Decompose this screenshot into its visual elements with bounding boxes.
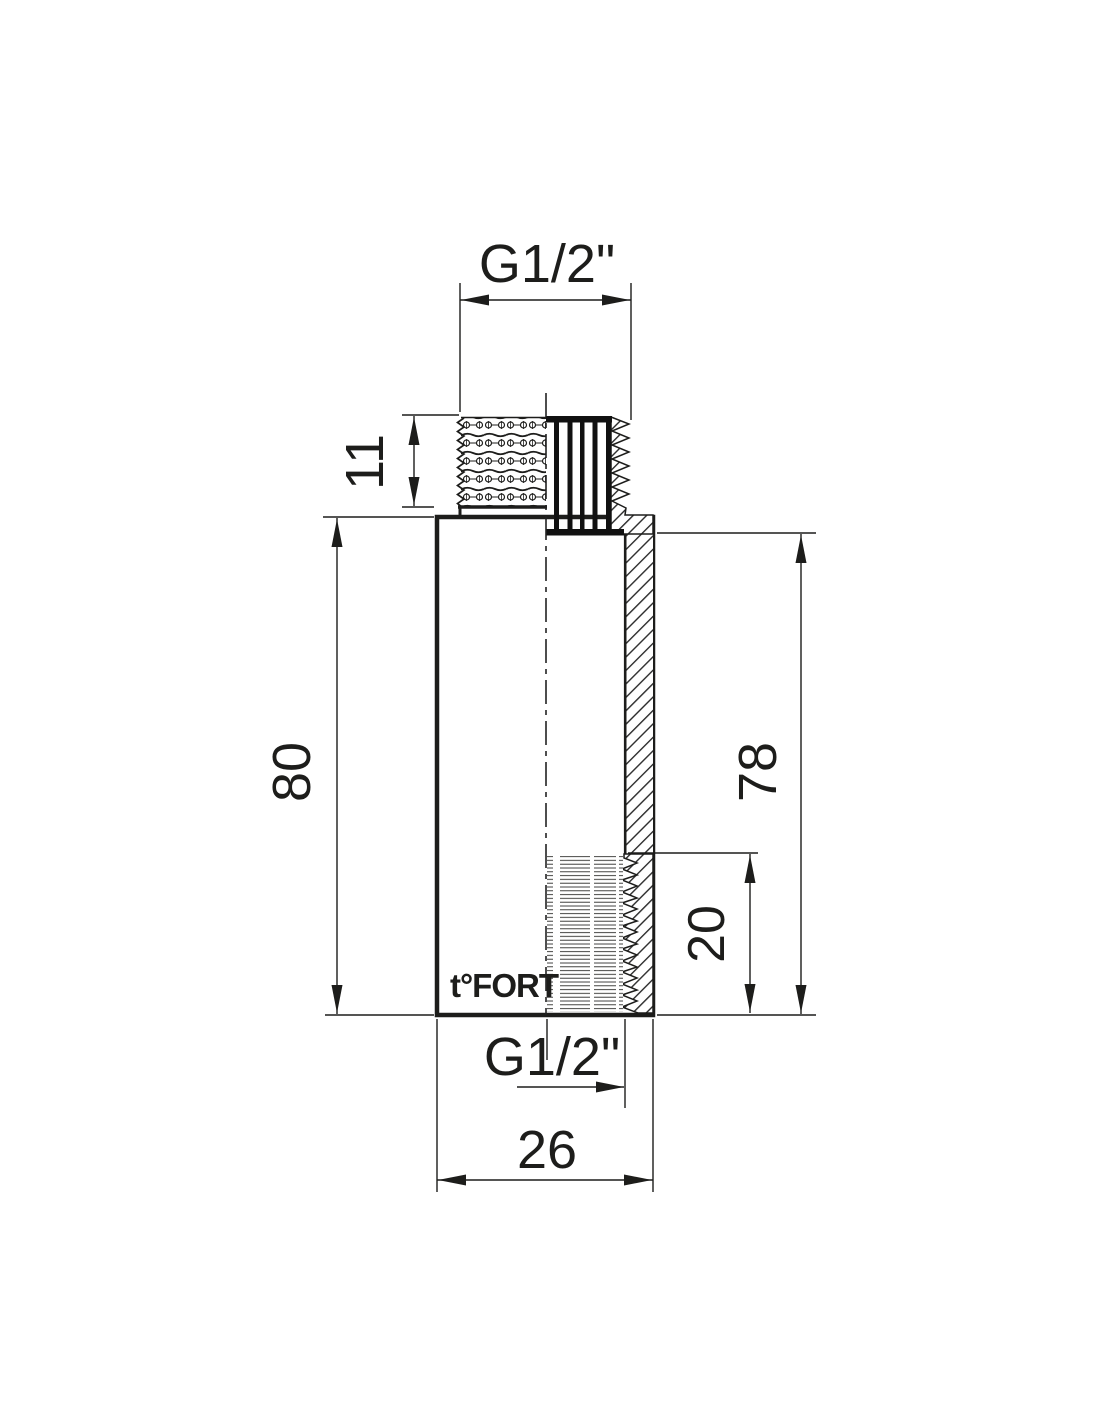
arrowhead-right: [602, 295, 630, 306]
arrowhead-down: [745, 984, 756, 1012]
dim-label-top-thread-length: 11: [335, 434, 395, 490]
arrowhead-down: [332, 985, 343, 1013]
arrowhead-down: [409, 477, 420, 505]
dim-label-bore-height: 78: [728, 742, 788, 802]
dim-label-overall-height: 80: [262, 742, 322, 802]
technical-drawing: t°FORT G1/2" 11 80 78: [0, 0, 1100, 1422]
logo-text: t°FORT: [450, 967, 559, 1004]
drawing-canvas: t°FORT G1/2" 11 80 78: [0, 0, 1100, 1422]
body-wall-section: [624, 534, 653, 854]
arrowhead-up: [409, 417, 420, 445]
arrowhead-left: [438, 1175, 466, 1186]
dim-label-top-thread: G1/2": [479, 234, 615, 294]
dim-top-thread-length: [402, 415, 459, 507]
male-thread-section: [611, 417, 653, 534]
fitting-body: t°FORT: [437, 393, 653, 1015]
male-thread-exterior: [461, 417, 546, 507]
arrowhead-up: [332, 519, 343, 547]
arrowhead-left: [461, 295, 489, 306]
arrowhead-right: [624, 1175, 652, 1186]
dim-overall-height: [323, 517, 434, 1015]
dim-label-bottom-thread-depth: 20: [678, 905, 736, 963]
arrowhead-down: [796, 985, 807, 1013]
arrowhead-up: [796, 535, 807, 563]
female-thread-lines: [547, 856, 623, 1012]
dim-label-bottom-thread: G1/2": [484, 1027, 620, 1087]
arrowhead-up: [745, 855, 756, 883]
dim-label-outer-width: 26: [517, 1120, 577, 1180]
